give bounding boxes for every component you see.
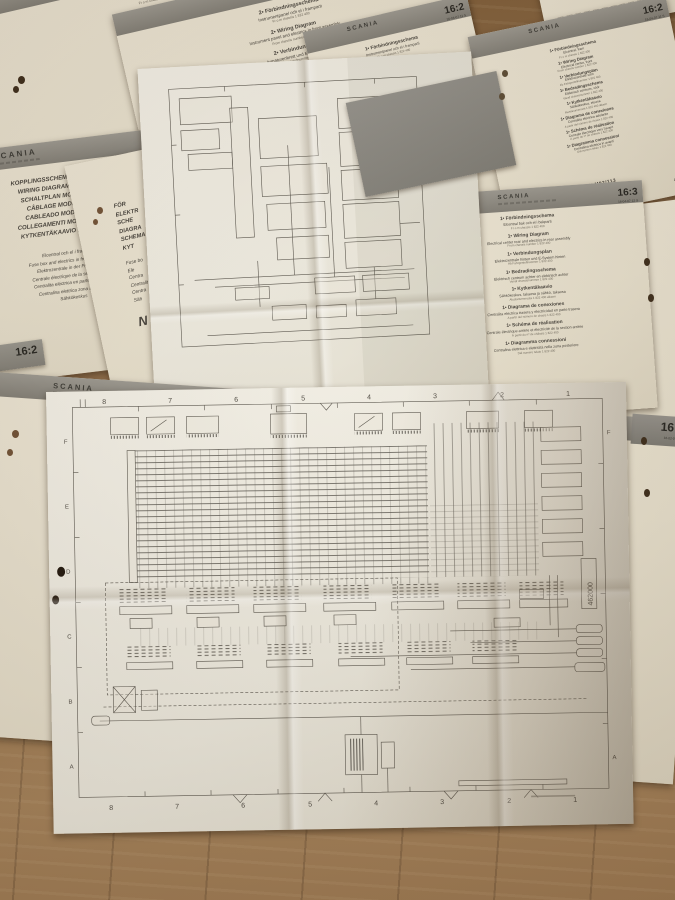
svg-text:5: 5 [301, 395, 305, 402]
stain-hole [12, 430, 19, 438]
svg-text:8: 8 [102, 399, 106, 406]
svg-text:7: 7 [168, 398, 172, 405]
punch-hole [499, 93, 505, 100]
svg-text:6: 6 [234, 397, 238, 404]
svg-text:F: F [64, 440, 68, 446]
photo-of-wiring-diagrams: NIVÅALB 469050 2/1 NIVÅALB 469050 2/1 SC… [0, 0, 675, 900]
svg-text:4: 4 [374, 800, 378, 807]
big-schematic-drawing: 8 7 6 5 4 3 2 1 8 7 6 5 4 3 2 1 F E D C … [46, 382, 634, 834]
punch-hole [13, 86, 19, 93]
tab-number: 16:2 [15, 344, 38, 359]
tab-number: 16:3 [617, 186, 638, 198]
section-tab: 16:2 16-02-07 12 N [631, 414, 675, 448]
stain-hole [7, 449, 13, 456]
svg-text:2: 2 [507, 798, 511, 805]
svg-text:3: 3 [440, 799, 444, 806]
svg-text:3: 3 [433, 393, 437, 400]
svg-text:4: 4 [367, 394, 371, 401]
svg-text:C: C [67, 635, 72, 641]
scania-brand: SCANIA [346, 20, 379, 33]
svg-text:7: 7 [175, 804, 179, 811]
stain-hole [97, 207, 103, 214]
svg-text:F: F [607, 430, 611, 436]
tab-number: 16:2 [660, 420, 675, 436]
svg-text:8: 8 [109, 805, 113, 812]
svg-text:1: 1 [573, 797, 577, 804]
big-wiring-diagram-sheet: 8 7 6 5 4 3 2 1 8 7 6 5 4 3 2 1 F E D C … [46, 382, 634, 834]
punch-hole [18, 76, 25, 84]
punch-hole [644, 489, 650, 497]
section-tab: 16:3 16-04-07 12 S [617, 182, 639, 204]
tab-code: 16-02-07 12 N [631, 434, 675, 442]
svg-text:A: A [70, 765, 74, 771]
svg-text:D: D [66, 570, 71, 576]
punch-hole [641, 437, 647, 445]
scania-brand: SCANIA [528, 23, 561, 36]
svg-text:A: A [612, 755, 616, 761]
stain-hole [93, 219, 98, 225]
svg-text:6: 6 [241, 803, 245, 810]
punch-hole [502, 70, 508, 77]
svg-text:B: B [68, 700, 72, 706]
svg-text:5: 5 [308, 801, 312, 808]
diagram-number: 462000 [587, 582, 594, 606]
punch-hole [648, 294, 654, 302]
svg-text:1: 1 [566, 391, 570, 398]
punch-hole [644, 258, 650, 266]
scania-brand: SCANIA [497, 193, 530, 201]
svg-text:E: E [65, 505, 69, 511]
